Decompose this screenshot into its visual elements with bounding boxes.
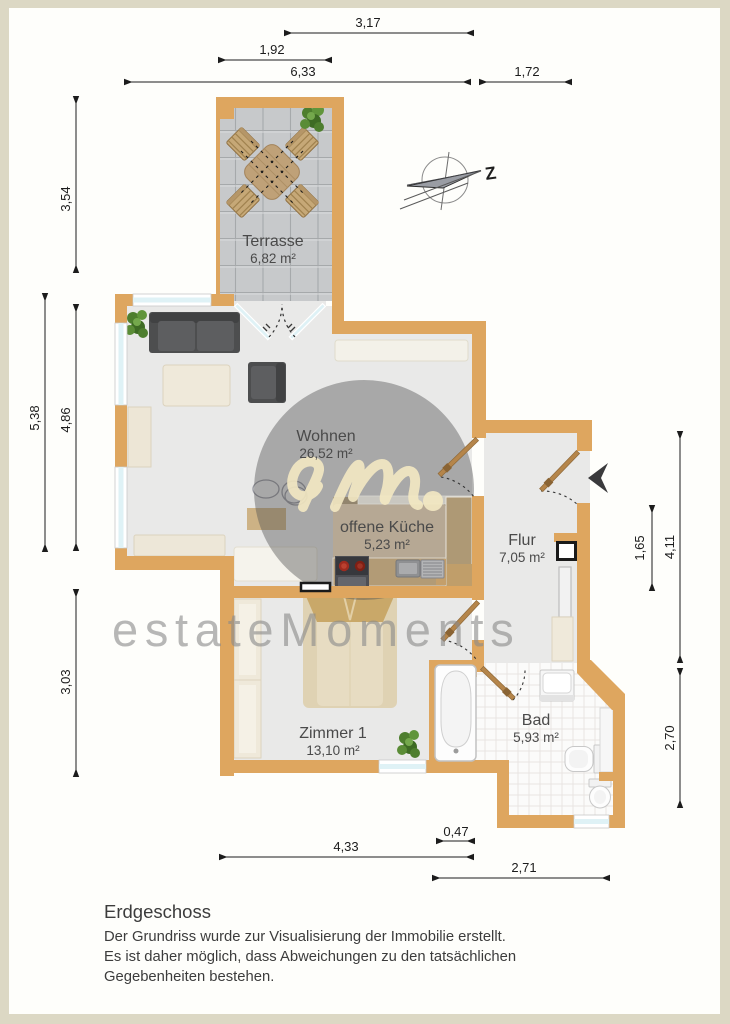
svg-text:offene Küche: offene Küche xyxy=(340,519,434,536)
svg-text:3,17: 3,17 xyxy=(355,15,380,30)
svg-text:Zimmer 1: Zimmer 1 xyxy=(299,725,367,742)
svg-text:5,38: 5,38 xyxy=(27,405,42,430)
svg-text:Bad: Bad xyxy=(522,712,550,729)
svg-text:Erdgeschoss: Erdgeschoss xyxy=(104,901,211,922)
svg-text:6,82 m²: 6,82 m² xyxy=(250,251,296,266)
svg-text:Es ist daher möglich, dass Abw: Es ist daher möglich, dass Abweichungen … xyxy=(104,949,516,965)
svg-text:6,33: 6,33 xyxy=(290,64,315,79)
svg-text:Wohnen: Wohnen xyxy=(296,428,355,445)
svg-text:4,33: 4,33 xyxy=(333,839,358,854)
svg-text:3,03: 3,03 xyxy=(58,669,73,694)
svg-text:1,92: 1,92 xyxy=(259,42,284,57)
svg-text:26,52 m²: 26,52 m² xyxy=(299,446,353,461)
svg-text:5,23 m²: 5,23 m² xyxy=(364,537,410,552)
svg-text:Der Grundriss wurde zur Visual: Der Grundriss wurde zur Visualisierung d… xyxy=(104,929,506,945)
svg-text:Flur: Flur xyxy=(508,532,536,549)
svg-text:4,86: 4,86 xyxy=(58,407,73,432)
svg-text:3,54: 3,54 xyxy=(58,186,73,211)
svg-text:0,47: 0,47 xyxy=(443,824,468,839)
svg-text:1,65: 1,65 xyxy=(632,535,647,560)
svg-text:4,11: 4,11 xyxy=(662,535,677,559)
svg-text:Gegebenheiten bestehen.: Gegebenheiten bestehen. xyxy=(104,969,274,985)
svg-text:7,05 m²: 7,05 m² xyxy=(499,550,545,565)
svg-text:13,10 m²: 13,10 m² xyxy=(306,743,360,758)
svg-text:2,71: 2,71 xyxy=(511,860,536,875)
svg-text:estateMoments: estateMoments xyxy=(112,603,520,656)
svg-text:Terrasse: Terrasse xyxy=(242,233,303,250)
svg-text:1,72: 1,72 xyxy=(514,64,539,79)
svg-text:5,93 m²: 5,93 m² xyxy=(513,730,559,745)
svg-text:2,70: 2,70 xyxy=(662,725,677,750)
